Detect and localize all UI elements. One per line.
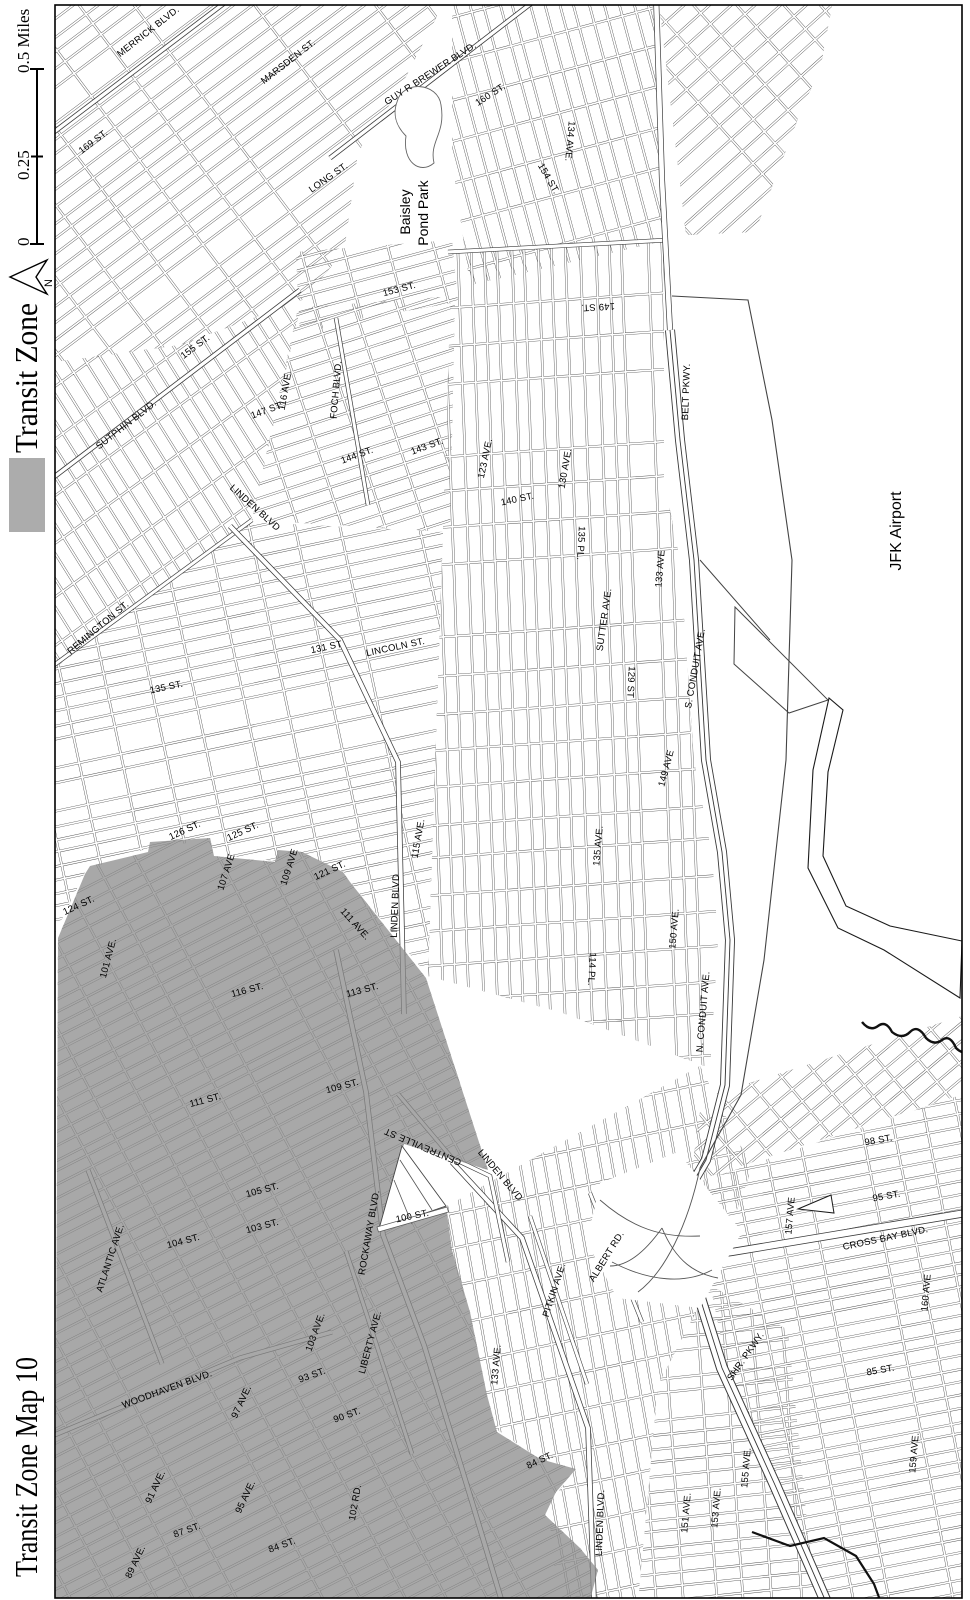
svg-text:0.5 Miles: 0.5 Miles (14, 9, 33, 73)
svg-text:Transit Zone Map 10: Transit Zone Map 10 (8, 1357, 44, 1577)
svg-text:129 ST: 129 ST (624, 666, 637, 698)
svg-text:Pond Park: Pond Park (415, 179, 431, 245)
svg-text:BELT PKWY.: BELT PKWY. (680, 363, 693, 420)
svg-text:LINDEN BLVD.: LINDEN BLVD. (594, 1489, 607, 1556)
svg-text:135 PL.: 135 PL. (574, 526, 587, 561)
svg-text:114 PL.: 114 PL. (585, 952, 598, 986)
svg-text:JFK Airport: JFK Airport (888, 491, 905, 571)
svg-text:N: N (43, 279, 55, 287)
svg-text:0: 0 (14, 238, 33, 247)
svg-text:0.25: 0.25 (14, 150, 33, 180)
svg-text:Baisley: Baisley (397, 189, 413, 234)
svg-text:LINDEN BLVD: LINDEN BLVD (389, 874, 402, 938)
svg-text:Transit Zone: Transit Zone (8, 303, 44, 453)
svg-text:149 ST.: 149 ST. (581, 300, 615, 313)
